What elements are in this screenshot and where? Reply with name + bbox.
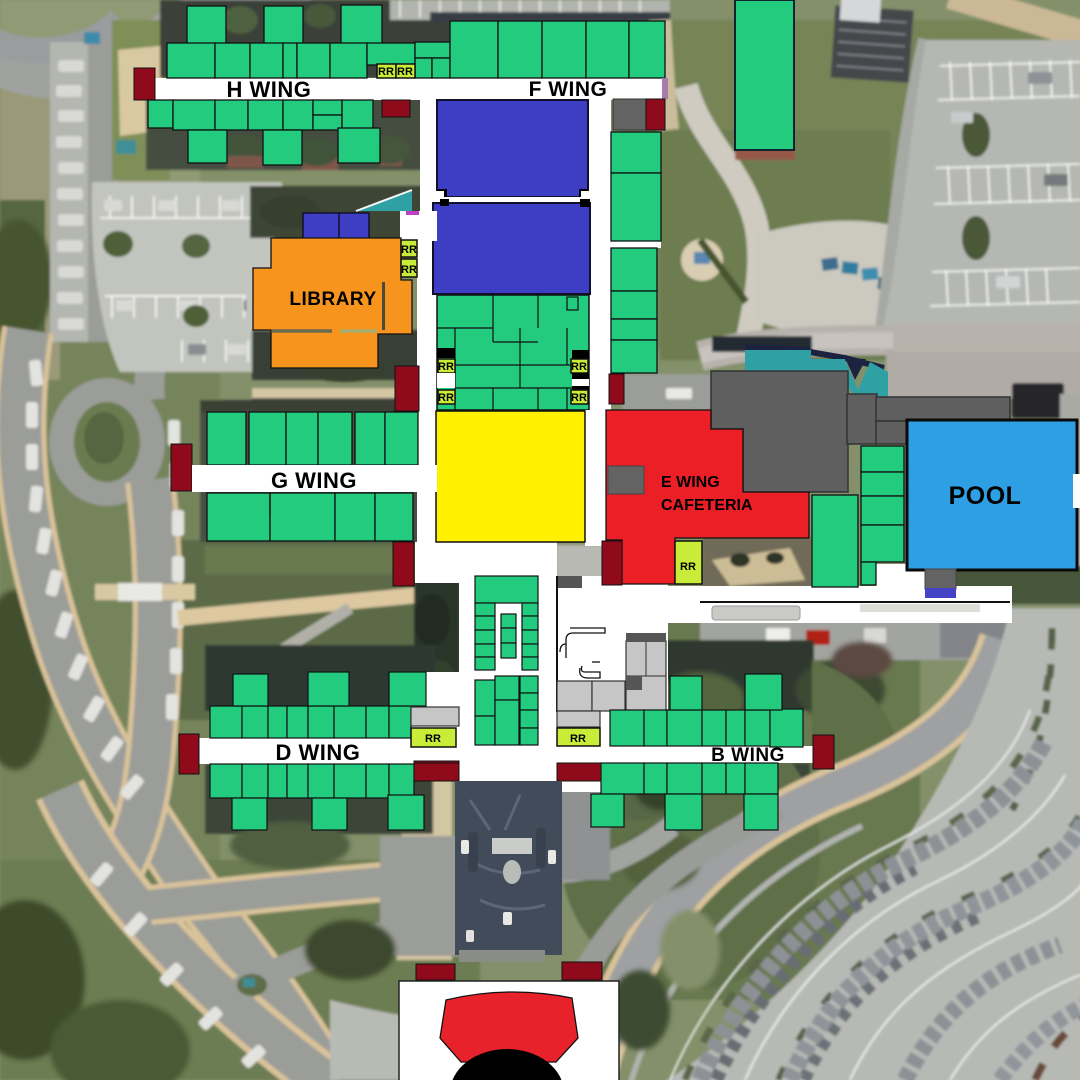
svg-text:H WING: H WING [227, 77, 312, 102]
svg-text:E WING: E WING [661, 474, 720, 491]
svg-text:CAFETERIA: CAFETERIA [661, 497, 753, 514]
svg-text:RR: RR [438, 392, 454, 404]
svg-text:RR: RR [571, 392, 587, 404]
svg-text:RR: RR [438, 361, 454, 373]
svg-text:D WING: D WING [276, 740, 361, 765]
svg-text:LIBRARY: LIBRARY [289, 289, 376, 310]
svg-text:RR: RR [571, 361, 587, 373]
svg-text:RR: RR [570, 733, 586, 745]
svg-text:RR: RR [425, 733, 441, 745]
svg-text:G WING: G WING [271, 468, 357, 493]
svg-text:RR: RR [401, 244, 417, 256]
svg-text:POOL: POOL [949, 482, 1022, 510]
svg-text:F WING: F WING [529, 78, 608, 101]
svg-text:RR: RR [378, 66, 394, 78]
svg-text:RR: RR [397, 66, 413, 78]
svg-text:RR: RR [680, 561, 696, 573]
svg-text:RR: RR [401, 264, 417, 276]
